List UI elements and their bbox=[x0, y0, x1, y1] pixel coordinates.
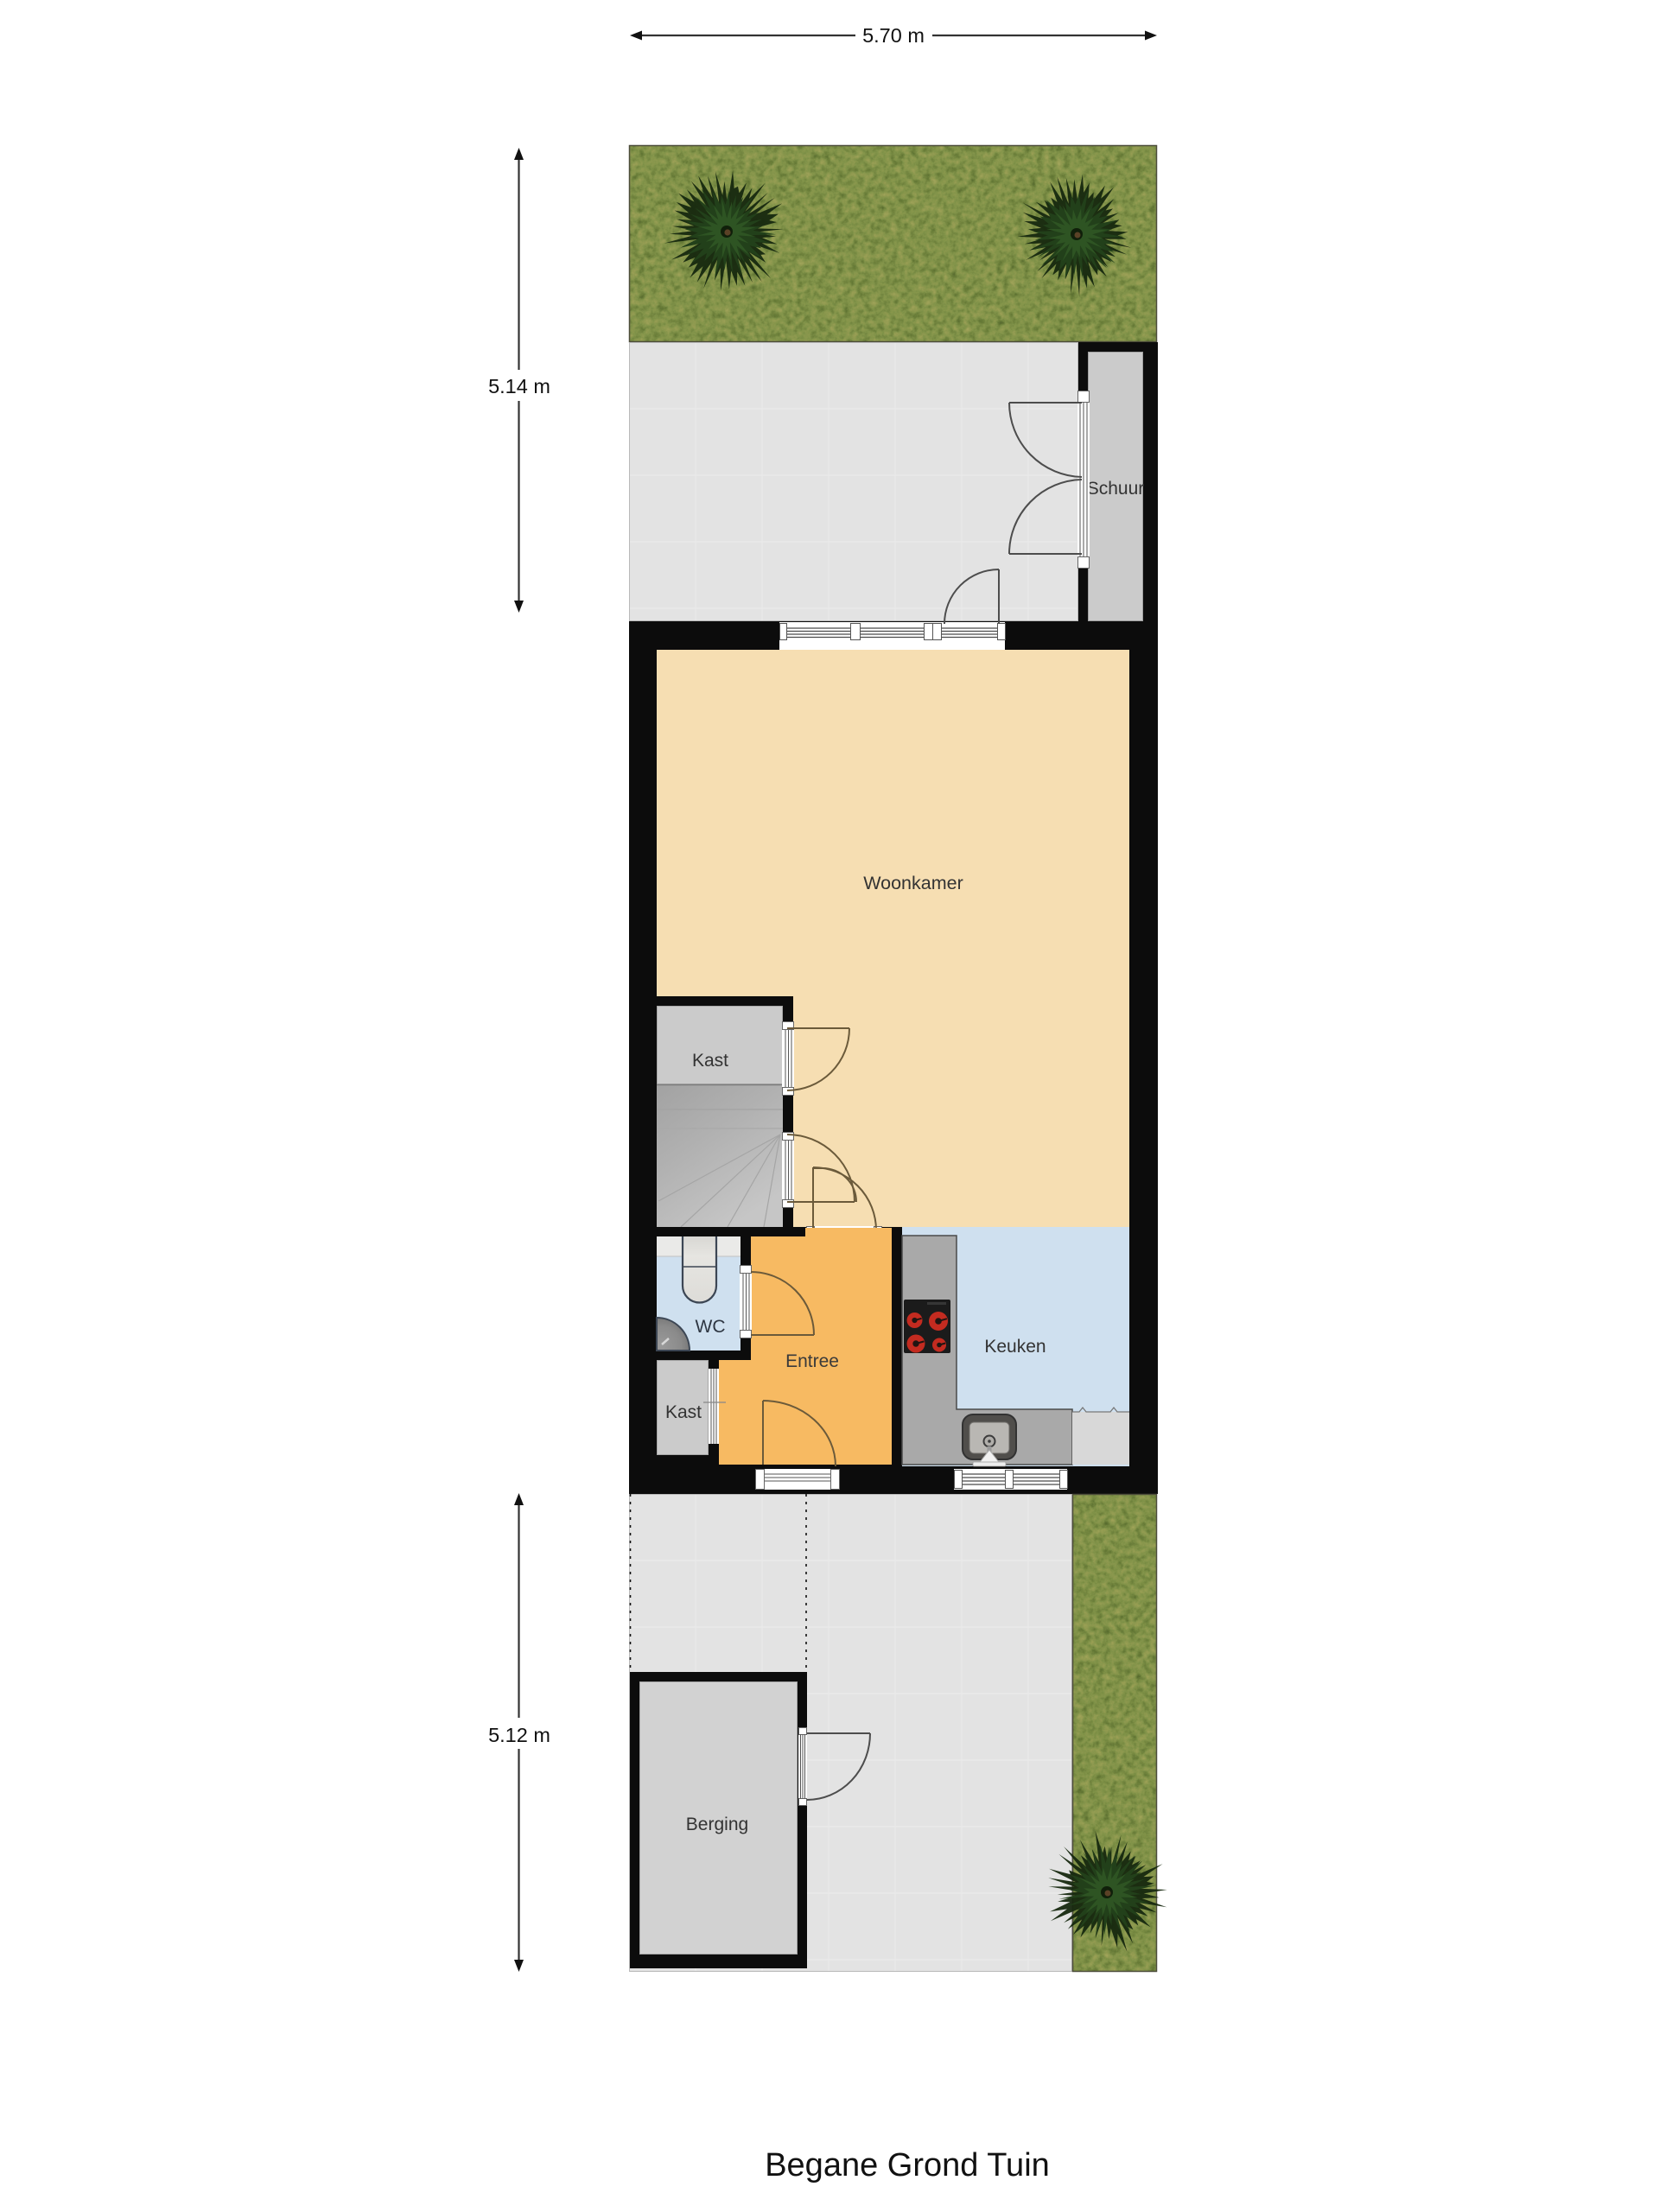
svg-text:Kast: Kast bbox=[665, 1402, 702, 1422]
svg-text:Entree: Entree bbox=[785, 1351, 839, 1371]
svg-text:Kast: Kast bbox=[692, 1051, 728, 1071]
svg-text:WC: WC bbox=[696, 1317, 726, 1337]
svg-text:Woonkamer: Woonkamer bbox=[863, 873, 963, 893]
svg-text:Begane Grond Tuin: Begane Grond Tuin bbox=[765, 2147, 1050, 2183]
svg-text:Schuur: Schuur bbox=[1087, 479, 1145, 499]
svg-text:Keuken: Keuken bbox=[984, 1337, 1046, 1357]
svg-text:5.70 m: 5.70 m bbox=[862, 24, 925, 47]
svg-text:Berging: Berging bbox=[686, 1815, 748, 1834]
svg-text:5.14 m: 5.14 m bbox=[488, 375, 550, 397]
svg-text:5.12 m: 5.12 m bbox=[488, 1724, 550, 1746]
